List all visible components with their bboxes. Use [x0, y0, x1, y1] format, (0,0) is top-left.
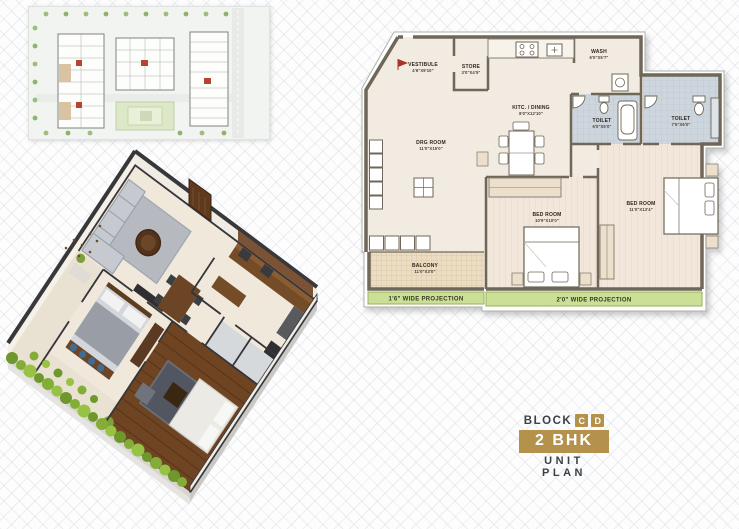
- cabinet-plan: [477, 152, 488, 166]
- core-marker: [204, 78, 211, 84]
- sink-icon: [547, 44, 562, 56]
- core-marker: [76, 102, 82, 108]
- unit-floor-plan: 1'6" WIDE PROJECTION 2'0" WIDE PROJECTIO…: [361, 20, 729, 312]
- room-dims-drg: 11'0"X15'0": [419, 146, 443, 151]
- room-dims-bed-2: 11'0"X13'4": [629, 207, 653, 212]
- room-dims-toilet-1: 6'0"X5'0": [593, 124, 612, 129]
- kitchen-counter: [488, 39, 574, 58]
- stove-icon: [516, 42, 538, 57]
- projection-2-label: 2'0" WIDE PROJECTION: [557, 298, 632, 304]
- room-dims-balcony: 11'0"X3'0": [414, 269, 435, 274]
- unit-plan-label: UNIT PLAN: [519, 455, 609, 479]
- projection-1-label: 1'6" WIDE PROJECTION: [389, 297, 464, 303]
- room-dims-store: 3'0"X4'5": [462, 70, 481, 75]
- highlighted-unit: [59, 102, 71, 120]
- shower-panel: [711, 98, 719, 138]
- building-b: [116, 38, 174, 90]
- wc-icon: [599, 96, 609, 114]
- projection-strip-2: 2'0" WIDE PROJECTION: [486, 292, 702, 306]
- room-dims-wash: 6'0"X5'7": [590, 55, 609, 60]
- amenity-court: [116, 102, 174, 130]
- isometric-apartment-render: [0, 148, 350, 528]
- site-key-plan: [28, 6, 270, 140]
- center-table-plan: [414, 178, 433, 197]
- block-letter-d: D: [591, 414, 604, 427]
- unit-type-banner: 2 BHK: [519, 430, 609, 453]
- room-dims-toilet-2: 7'5"X6'0": [672, 122, 691, 127]
- core-marker: [76, 60, 82, 66]
- room-dims-vestibule: 4'6"X9'10": [412, 68, 433, 73]
- block-label: BLOCK: [524, 415, 572, 427]
- room-dims-bed-1: 10'9"X10'0": [535, 218, 559, 223]
- block-row: BLOCK C D: [519, 414, 609, 427]
- core-marker: [141, 60, 148, 66]
- projection-strip-1: 1'6" WIDE PROJECTION: [368, 292, 484, 304]
- toilet-2-floor: [643, 75, 720, 144]
- washing-machine-icon: [612, 74, 628, 91]
- block-letter-c: C: [575, 414, 588, 427]
- title-block: BLOCK C D 2 BHK UNIT PLAN: [519, 414, 609, 479]
- bathtub-icon: [618, 101, 637, 140]
- highlighted-unit: [59, 64, 71, 82]
- building-a: [58, 34, 104, 128]
- building-c: [190, 32, 228, 126]
- room-dims-kitchen: 8'0"X12'10": [519, 111, 543, 116]
